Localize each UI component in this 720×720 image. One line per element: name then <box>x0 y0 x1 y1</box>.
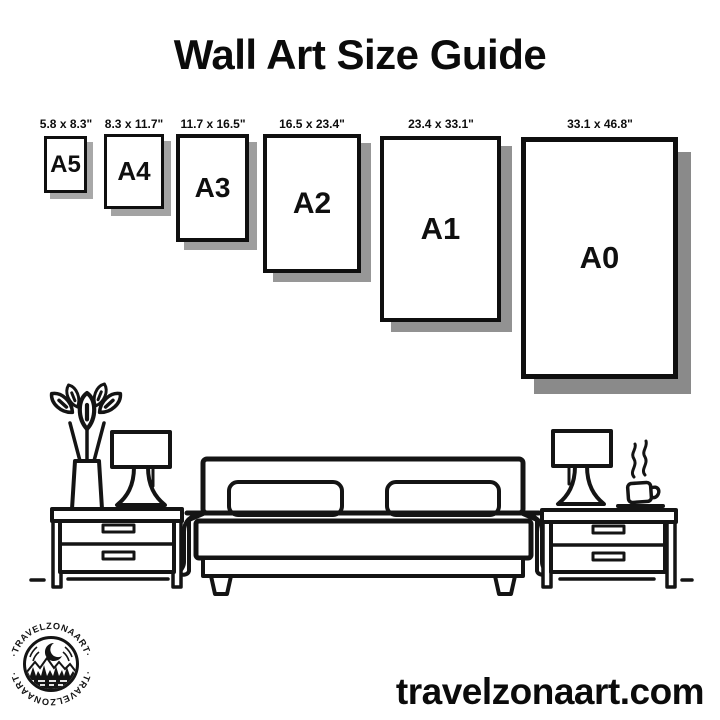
lamp-base <box>117 467 165 505</box>
website-url: travelzonaart.com <box>380 671 720 713</box>
lamp-shade <box>112 432 170 467</box>
nightstand-leg <box>667 521 675 587</box>
drawer-handle <box>103 525 134 532</box>
bed-base <box>203 558 523 576</box>
drawer-handle <box>593 553 624 560</box>
cup-body <box>627 482 651 503</box>
table-lamp-right-icon <box>553 431 611 504</box>
plant-vase <box>72 461 102 509</box>
bed-icon <box>178 459 548 594</box>
plant-leaf-center <box>80 393 94 429</box>
plant-stem <box>70 423 80 461</box>
bed-leg <box>211 576 231 594</box>
coffee-cup-icon <box>618 441 663 506</box>
plant-stem <box>94 423 104 461</box>
bed-pillow-left <box>229 482 342 515</box>
nightstand-right-icon <box>542 510 676 587</box>
drawer-handle <box>103 552 134 559</box>
brand-logo: ·TRAVELZONAART· ·TRAVELZONAART· <box>7 620 95 708</box>
bed-pillow-right <box>387 482 499 515</box>
drawer-handle <box>593 526 624 533</box>
steam <box>643 441 646 475</box>
bed-leg <box>495 576 515 594</box>
table-lamp-left-icon <box>112 432 170 505</box>
wall-art-size-guide-poster: Wall Art Size Guide 5.8 x 8.3" 8.3 x 11.… <box>0 0 720 720</box>
lamp-base <box>558 466 604 504</box>
lamp-shade <box>553 431 611 466</box>
bed-mattress <box>196 521 531 558</box>
bedroom-illustration <box>0 0 720 720</box>
steam <box>632 444 635 477</box>
nightstand-left-icon <box>52 509 182 587</box>
